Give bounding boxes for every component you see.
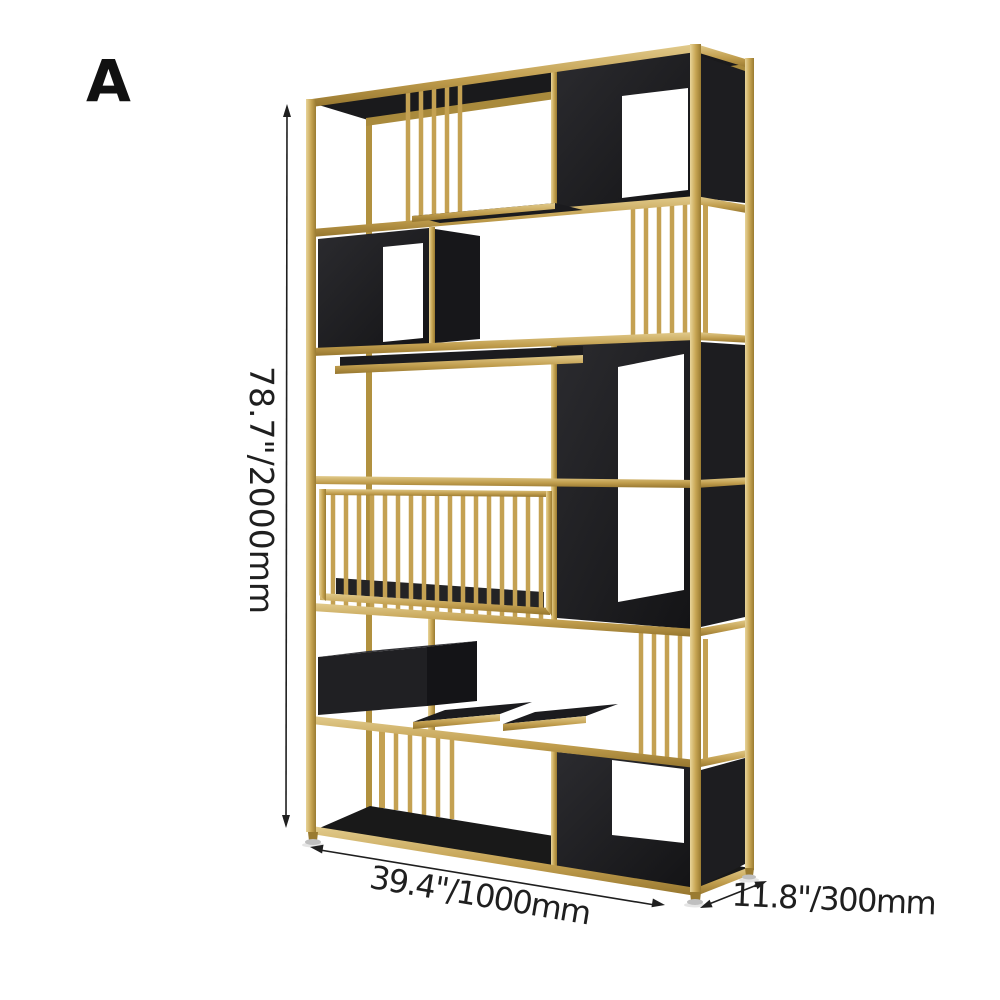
storage-bin [318,641,477,715]
arrow-right-icon [652,899,666,908]
row1-black-box [551,51,690,215]
bookshelf-diagram: 78.7"/2000mm 39.4"/1000mm 11.8"/300mm A [0,0,1000,1000]
depth-dimension: 11.8"/300mm [700,876,936,923]
row2-slats [633,199,685,338]
bookshelf-illustration [302,44,759,908]
height-dimension-label: 78.7"/2000mm [242,366,281,614]
row6-slats [382,728,452,819]
row5-slats [641,628,680,762]
depth-dimension-label: 11.8"/300mm [731,876,936,923]
product-dimension-image: 78.7"/2000mm 39.4"/1000mm 11.8"/300mm A [0,0,1000,1000]
slat-screen [319,489,552,622]
row6-black-box [551,748,690,887]
variant-label: A [86,47,131,115]
arrow-up-icon [283,104,291,117]
row2-black-box [318,227,480,350]
right-side-face [696,56,752,896]
arrow-down-icon [282,815,290,828]
tray-row5-right [503,704,618,731]
height-dimension: 78.7"/2000mm [242,104,291,828]
